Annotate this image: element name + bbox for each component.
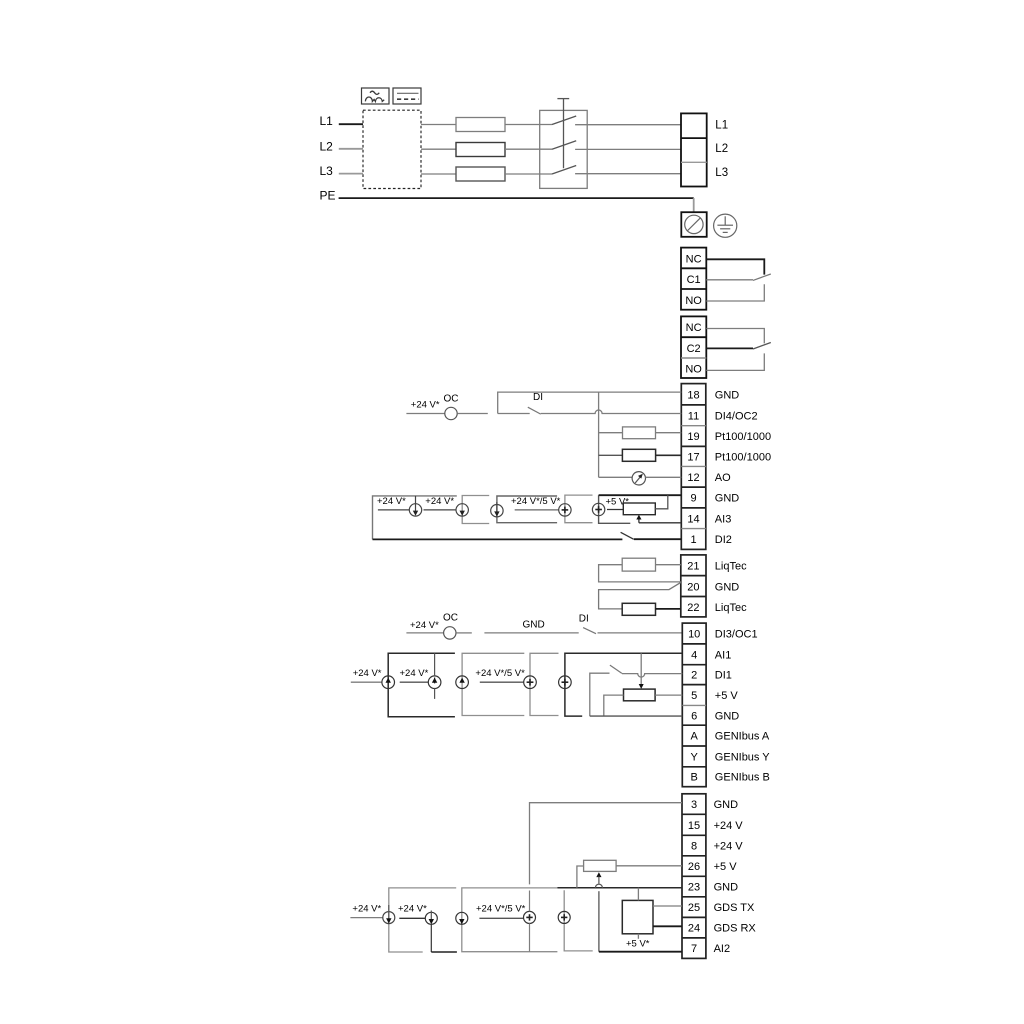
svg-text:L2: L2 bbox=[715, 143, 728, 155]
svg-text:L3: L3 bbox=[715, 167, 728, 179]
svg-text:AI3: AI3 bbox=[715, 513, 732, 525]
svg-text:+24 V*/5 V*: +24 V*/5 V* bbox=[475, 668, 525, 679]
svg-text:L1: L1 bbox=[715, 120, 728, 132]
svg-text:DI4/OC2: DI4/OC2 bbox=[715, 410, 758, 422]
svg-text:B: B bbox=[691, 772, 698, 784]
svg-text:GND: GND bbox=[523, 620, 545, 631]
svg-text:GENIbus A: GENIbus A bbox=[715, 731, 770, 743]
svg-text:+24 V*/5 V*: +24 V*/5 V* bbox=[476, 903, 526, 914]
svg-text:L2: L2 bbox=[320, 140, 334, 154]
svg-text:25: 25 bbox=[688, 902, 700, 914]
svg-text:22: 22 bbox=[687, 602, 699, 614]
svg-text:GENIbus Y: GENIbus Y bbox=[715, 751, 770, 763]
svg-text:26: 26 bbox=[688, 861, 700, 873]
svg-text:PE: PE bbox=[320, 189, 336, 203]
svg-text:7: 7 bbox=[691, 943, 697, 955]
svg-text:L3: L3 bbox=[320, 164, 334, 178]
svg-text:DI1: DI1 bbox=[715, 670, 732, 682]
svg-text:3: 3 bbox=[691, 799, 697, 811]
svg-text:+5 V: +5 V bbox=[715, 690, 739, 702]
svg-text:+24 V*: +24 V* bbox=[377, 496, 406, 507]
svg-text:14: 14 bbox=[687, 513, 699, 525]
svg-text:Y: Y bbox=[691, 751, 699, 763]
svg-text:11: 11 bbox=[688, 410, 699, 422]
svg-text:Pt100/1000: Pt100/1000 bbox=[715, 451, 771, 463]
svg-text:LiqTec: LiqTec bbox=[715, 561, 747, 573]
svg-text:DI: DI bbox=[533, 392, 543, 403]
svg-text:8: 8 bbox=[691, 841, 697, 853]
svg-text:DI2: DI2 bbox=[715, 534, 732, 546]
svg-text:+24 V*: +24 V* bbox=[425, 496, 454, 507]
svg-text:+24 V*: +24 V* bbox=[400, 668, 429, 679]
svg-text:OC: OC bbox=[444, 394, 459, 405]
svg-text:+24 V*: +24 V* bbox=[353, 668, 382, 679]
svg-text:+24 V*/5 V*: +24 V*/5 V* bbox=[511, 496, 561, 507]
svg-text:NO: NO bbox=[685, 364, 702, 376]
svg-text:GND: GND bbox=[714, 882, 739, 894]
svg-text:AI1: AI1 bbox=[715, 649, 732, 661]
svg-text:5: 5 bbox=[691, 690, 697, 702]
svg-text:AO: AO bbox=[715, 472, 731, 484]
svg-text:+24 V: +24 V bbox=[714, 820, 744, 832]
svg-text:NC: NC bbox=[686, 322, 702, 334]
svg-text:+24 V*: +24 V* bbox=[398, 903, 427, 914]
svg-text:+5 V*: +5 V* bbox=[606, 497, 630, 508]
svg-text:10: 10 bbox=[688, 629, 700, 641]
svg-text:GENIbus B: GENIbus B bbox=[715, 772, 770, 784]
svg-text:6: 6 bbox=[691, 710, 697, 722]
svg-text:21: 21 bbox=[687, 561, 699, 573]
svg-text:+5 V*: +5 V* bbox=[626, 939, 650, 950]
svg-text:20: 20 bbox=[687, 581, 699, 593]
svg-text:+24 V: +24 V bbox=[714, 841, 744, 853]
svg-text:DI3/OC1: DI3/OC1 bbox=[715, 629, 758, 641]
svg-text:DI: DI bbox=[579, 613, 589, 624]
svg-text:9: 9 bbox=[690, 493, 696, 505]
svg-text:17: 17 bbox=[687, 451, 699, 463]
svg-text:23: 23 bbox=[688, 882, 700, 894]
svg-text:24: 24 bbox=[688, 923, 700, 935]
svg-text:C2: C2 bbox=[687, 343, 701, 355]
svg-text:GND: GND bbox=[715, 710, 740, 722]
svg-text:19: 19 bbox=[687, 431, 699, 443]
svg-text:+24 V*: +24 V* bbox=[410, 620, 439, 631]
svg-text:OC: OC bbox=[443, 613, 458, 624]
svg-text:1: 1 bbox=[690, 534, 696, 546]
svg-text:GDS RX: GDS RX bbox=[714, 923, 757, 935]
svg-text:GDS TX: GDS TX bbox=[714, 902, 755, 914]
svg-text:18: 18 bbox=[687, 389, 699, 401]
svg-text:AI2: AI2 bbox=[714, 943, 731, 955]
svg-text:2: 2 bbox=[691, 670, 697, 682]
svg-text:+24 V*: +24 V* bbox=[352, 903, 381, 914]
svg-text:LiqTec: LiqTec bbox=[715, 602, 747, 614]
svg-text:C1: C1 bbox=[687, 274, 701, 286]
svg-text:GND: GND bbox=[714, 799, 739, 811]
svg-text:Pt100/1000: Pt100/1000 bbox=[715, 431, 771, 443]
svg-text:GND: GND bbox=[715, 493, 740, 505]
svg-text:NC: NC bbox=[686, 253, 702, 265]
svg-text:NO: NO bbox=[685, 295, 702, 307]
svg-text:GND: GND bbox=[715, 389, 740, 401]
svg-text:A: A bbox=[691, 731, 699, 743]
svg-text:+24 V*: +24 V* bbox=[411, 400, 440, 411]
svg-text:15: 15 bbox=[688, 820, 700, 832]
svg-text:4: 4 bbox=[691, 649, 697, 661]
svg-text:+5 V: +5 V bbox=[714, 861, 738, 873]
svg-text:L1: L1 bbox=[320, 114, 334, 128]
svg-text:GND: GND bbox=[715, 581, 740, 593]
svg-text:12: 12 bbox=[687, 472, 699, 484]
